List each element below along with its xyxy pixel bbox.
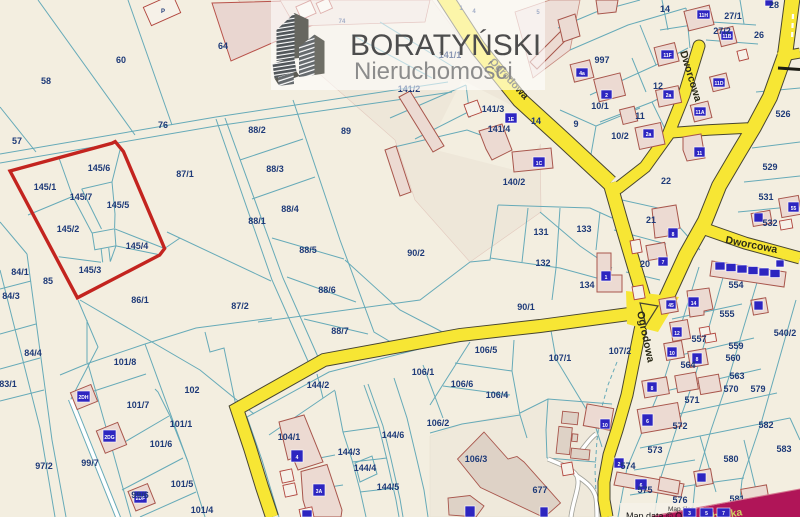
svg-text:582: 582 (758, 420, 773, 430)
svg-text:88/6: 88/6 (318, 285, 336, 295)
svg-text:11: 11 (635, 111, 645, 121)
svg-text:145/6: 145/6 (88, 163, 111, 173)
svg-text:132: 132 (535, 258, 550, 268)
svg-text:14: 14 (531, 116, 541, 126)
svg-text:583: 583 (776, 444, 791, 454)
svg-text:1E: 1E (508, 117, 515, 123)
svg-text:97/2: 97/2 (35, 461, 53, 471)
svg-text:560: 560 (725, 353, 740, 363)
svg-text:107/2: 107/2 (609, 346, 632, 356)
svg-text:145/3: 145/3 (79, 265, 102, 275)
svg-text:11H: 11H (699, 13, 708, 19)
svg-text:564: 564 (680, 360, 695, 370)
svg-text:145/5: 145/5 (107, 200, 130, 210)
svg-text:88/4: 88/4 (281, 204, 299, 214)
svg-text:88/7: 88/7 (331, 326, 349, 336)
svg-text:87/2: 87/2 (231, 301, 249, 311)
svg-text:84/3: 84/3 (2, 291, 20, 301)
svg-text:144/4: 144/4 (354, 463, 377, 473)
svg-text:144/3: 144/3 (338, 447, 361, 457)
svg-text:573: 573 (647, 445, 662, 455)
svg-text:14: 14 (691, 301, 697, 307)
svg-text:57: 57 (12, 136, 22, 146)
svg-text:10/2: 10/2 (611, 131, 629, 141)
svg-text:5: 5 (705, 511, 708, 517)
svg-text:140/2: 140/2 (503, 177, 526, 187)
svg-text:88/5: 88/5 (299, 245, 317, 255)
svg-text:106/5: 106/5 (475, 345, 498, 355)
svg-text:4: 4 (296, 455, 299, 461)
svg-text:559: 559 (728, 341, 743, 351)
svg-text:531: 531 (758, 192, 773, 202)
svg-text:145/2: 145/2 (57, 224, 80, 234)
svg-text:145/1: 145/1 (34, 182, 57, 192)
svg-text:106/2: 106/2 (427, 418, 450, 428)
svg-text:7: 7 (662, 260, 665, 266)
svg-text:131: 131 (533, 227, 548, 237)
svg-text:99/6: 99/6 (131, 490, 149, 500)
svg-text:141/3: 141/3 (482, 104, 505, 114)
svg-text:90/1: 90/1 (517, 302, 535, 312)
svg-text:1C: 1C (536, 161, 543, 167)
svg-text:27/1: 27/1 (724, 11, 742, 21)
svg-text:88/2: 88/2 (248, 125, 266, 135)
svg-text:2a: 2a (666, 93, 672, 99)
svg-text:83/1: 83/1 (0, 379, 17, 389)
svg-text:571: 571 (684, 395, 699, 405)
svg-text:141/4: 141/4 (488, 124, 511, 134)
svg-text:P: P (161, 9, 165, 15)
svg-text:579: 579 (750, 384, 765, 394)
svg-text:106/3: 106/3 (465, 454, 488, 464)
svg-text:529: 529 (762, 162, 777, 172)
svg-text:76: 76 (158, 120, 168, 130)
svg-text:89: 89 (341, 126, 351, 136)
svg-text:90/2: 90/2 (407, 248, 425, 258)
svg-text:2a: 2a (646, 132, 652, 138)
svg-text:572: 572 (672, 421, 687, 431)
svg-text:86/1: 86/1 (131, 295, 149, 305)
svg-text:2DH: 2DH (78, 395, 88, 401)
svg-text:3A: 3A (316, 489, 323, 495)
svg-text:106/1: 106/1 (412, 367, 435, 377)
svg-text:11A: 11A (696, 110, 705, 116)
svg-text:555: 555 (719, 309, 734, 319)
svg-text:Map data © O: Map data © O (626, 511, 682, 517)
svg-text:6: 6 (646, 419, 649, 425)
svg-text:101/4: 101/4 (191, 505, 214, 515)
svg-text:101/5: 101/5 (171, 479, 194, 489)
svg-text:570: 570 (723, 384, 738, 394)
svg-text:526: 526 (775, 109, 790, 119)
svg-text:575: 575 (637, 485, 652, 495)
svg-text:145/4: 145/4 (126, 241, 149, 251)
svg-text:1: 1 (605, 275, 608, 281)
svg-text:45: 45 (668, 303, 674, 309)
svg-text:10: 10 (602, 423, 608, 429)
svg-text:557: 557 (691, 334, 706, 344)
svg-text:101/6: 101/6 (150, 439, 173, 449)
svg-text:563: 563 (729, 371, 744, 381)
svg-text:10: 10 (669, 351, 675, 357)
svg-text:8: 8 (696, 357, 699, 363)
svg-text:99/7: 99/7 (81, 458, 99, 468)
svg-text:574: 574 (620, 461, 635, 471)
svg-text:84/4: 84/4 (24, 348, 42, 358)
svg-text:11F: 11F (663, 53, 671, 59)
svg-text:58: 58 (41, 76, 51, 86)
svg-text:677: 677 (532, 485, 547, 495)
svg-text:9: 9 (573, 119, 578, 129)
svg-text:28: 28 (769, 0, 779, 10)
svg-text:7: 7 (722, 511, 725, 517)
svg-text:12: 12 (674, 331, 680, 337)
svg-text:532: 532 (762, 218, 777, 228)
svg-text:64: 64 (218, 41, 228, 51)
svg-text:84/1: 84/1 (11, 267, 29, 277)
svg-text:2: 2 (605, 93, 608, 99)
svg-text:104/1: 104/1 (278, 432, 301, 442)
svg-text:101/1: 101/1 (170, 419, 193, 429)
svg-text:22: 22 (661, 176, 671, 186)
svg-text:133: 133 (576, 224, 591, 234)
svg-text:144/2: 144/2 (307, 380, 330, 390)
svg-text:88/1: 88/1 (248, 216, 266, 226)
svg-text:554: 554 (728, 280, 743, 290)
svg-text:12: 12 (653, 81, 663, 91)
svg-text:14: 14 (660, 4, 670, 14)
svg-text:26: 26 (754, 30, 764, 40)
svg-text:21: 21 (646, 215, 656, 225)
svg-text:Nieruchomości: Nieruchomości (354, 58, 513, 85)
svg-text:106/4: 106/4 (486, 390, 509, 400)
svg-text:60: 60 (116, 55, 126, 65)
svg-text:144/5: 144/5 (377, 482, 400, 492)
svg-text:27/2: 27/2 (713, 26, 731, 36)
svg-text:8: 8 (651, 386, 654, 392)
svg-text:101/7: 101/7 (127, 400, 150, 410)
svg-text:10/1: 10/1 (591, 101, 609, 111)
svg-text:101/8: 101/8 (114, 357, 137, 367)
svg-text:55: 55 (791, 206, 797, 212)
svg-text:107/1: 107/1 (549, 353, 572, 363)
svg-text:106/6: 106/6 (451, 379, 474, 389)
svg-text:145/7: 145/7 (70, 192, 93, 202)
svg-text:580: 580 (723, 454, 738, 464)
svg-text:88/3: 88/3 (266, 164, 284, 174)
svg-text:102: 102 (184, 385, 199, 395)
svg-text:3: 3 (688, 511, 691, 517)
svg-text:2DG: 2DG (104, 435, 114, 441)
svg-text:997: 997 (594, 55, 609, 65)
svg-text:4a: 4a (579, 71, 585, 77)
svg-text:540/2: 540/2 (774, 328, 797, 338)
svg-text:11D: 11D (715, 81, 724, 87)
svg-text:11: 11 (697, 151, 703, 157)
svg-text:134: 134 (579, 280, 594, 290)
svg-text:87/1: 87/1 (176, 169, 194, 179)
svg-text:8: 8 (672, 232, 675, 238)
svg-text:85: 85 (43, 276, 53, 286)
svg-text:144/6: 144/6 (382, 430, 405, 440)
svg-text:20: 20 (640, 259, 650, 269)
